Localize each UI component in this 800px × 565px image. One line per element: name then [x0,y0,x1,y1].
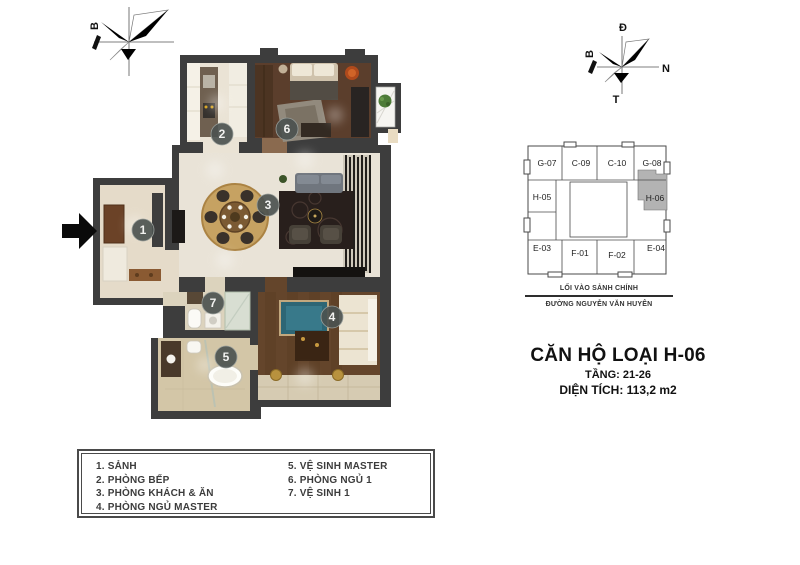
plant-icon [279,175,287,183]
unit-label: C-09 [572,158,591,168]
console-table [129,269,161,281]
floor-lamp [271,370,282,381]
legend-item: 1. SẢNH [96,460,218,474]
compass-north-label: B [585,50,596,58]
legend-item: 2. PHÒNG BẾP [96,474,218,488]
apartment-floor-plan: 1 2 3 4 5 6 7 [55,45,405,435]
compass-south-label: N [662,63,670,75]
area-size: DIỆN TÍCH: 113,2 m2 [508,383,728,397]
legend-item: 4. PHÒNG NGỦ MASTER [96,501,218,515]
street-label: ĐƯỜNG NGUYỄN VĂN HUYÊN [520,301,678,308]
room-badge-2: 2 [211,123,233,145]
entrance-label: LỐI VÀO SẢNH CHÍNH [520,285,678,292]
floor-plan-page: B Đ N T B [0,0,800,565]
room-badge-6: 6 [276,118,298,140]
svg-text:5: 5 [223,350,230,364]
apartment-title: CĂN HỘ LOẠI H-06 [508,345,728,367]
legend-left-column: 1. SẢNH 2. PHÒNG BẾP 3. PHÒNG KHÁCH & ĂN… [96,460,218,514]
svg-text:1: 1 [140,223,147,237]
entry-mat [104,205,124,243]
street-divider-line [525,295,673,297]
toilet [187,341,201,353]
compass-east-label: Đ [619,22,627,34]
room-badge-7: 7 [202,292,224,314]
room-badge-4: 4 [321,306,343,328]
room-badge-3: 3 [257,194,279,216]
svg-text:3: 3 [265,198,272,212]
floor-lamp [333,370,344,381]
unit-label: G-08 [643,158,662,168]
room-badge-5: 5 [215,346,237,368]
legend-inner-border: 1. SẢNH 2. PHÒNG BẾP 3. PHÒNG KHÁCH & ĂN… [81,453,431,514]
legend-item: 3. PHÒNG KHÁCH & ĂN [96,487,218,501]
legend-item: 7. VỆ SINH 1 [288,487,388,501]
tv-console [293,267,365,277]
bedroom1-furniture [255,63,369,142]
legend-item: 5. VỆ SINH MASTER [288,460,388,474]
toilet [188,309,201,328]
building-key-plan: G-07 C-09 C-10 G-08 H-05 H-06 E-03 F-01 … [518,140,678,280]
balcony [376,87,398,143]
unit-label: C-10 [608,158,627,168]
legend-right-column: 5. VỆ SINH MASTER 6. PHÒNG NGỦ 1 7. VỆ S… [288,460,388,501]
svg-text:4: 4 [329,310,336,324]
unit-label: E-04 [647,243,665,253]
legend-item: 6. PHÒNG NGỦ 1 [288,474,388,488]
legend-box: 1. SẢNH 2. PHÒNG BẾP 3. PHÒNG KHÁCH & ĂN… [77,449,435,518]
unit-label: H-05 [533,192,552,202]
orientation-compass-icon: Đ N T B [585,12,685,106]
floor-range: TẦNG: 21-26 [508,369,728,381]
compass-west-label: T [613,94,620,106]
unit-label: F-02 [608,250,626,260]
unit-label: F-01 [571,248,589,258]
unit-label: E-03 [533,243,551,253]
unit-label: H-06 [646,193,665,203]
dresser [295,331,329,361]
title-block: CĂN HỘ LOẠI H-06 TẦNG: 21-26 DIỆN TÍCH: … [508,345,728,397]
svg-text:6: 6 [284,122,291,136]
plant-icon [379,95,392,108]
unit-label: G-07 [538,158,557,168]
room-badge-1: 1 [132,219,154,241]
svg-text:7: 7 [210,296,217,310]
entry-arrow-icon [62,213,97,249]
compass-north-label: B [89,22,101,30]
svg-text:2: 2 [219,127,226,141]
